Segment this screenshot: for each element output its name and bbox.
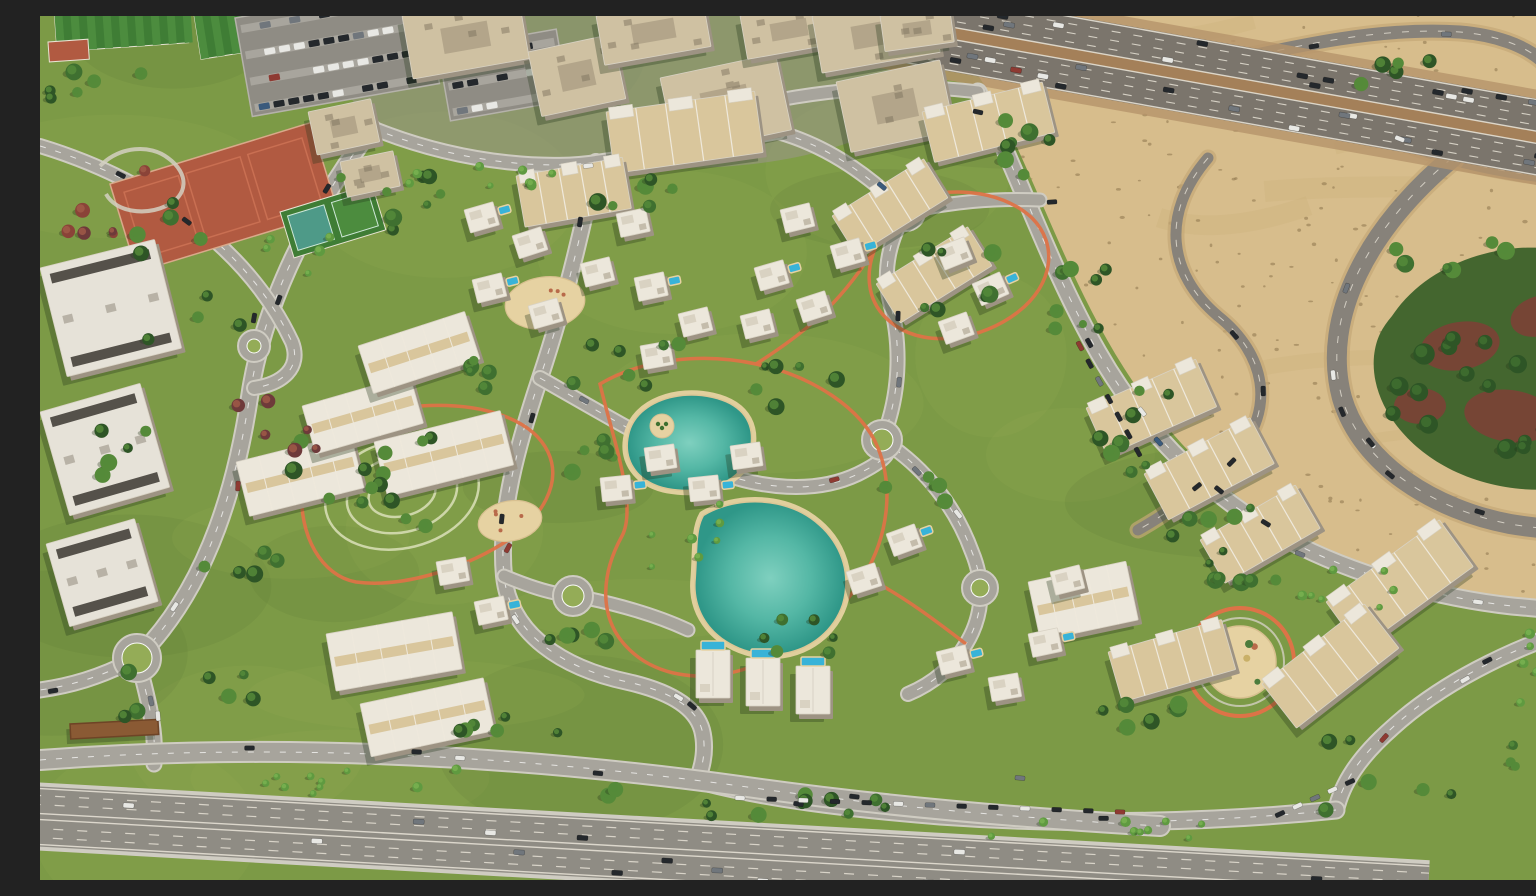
scene-canvas (40, 16, 1536, 880)
pool-villa (740, 649, 783, 714)
pool-villa (690, 641, 733, 706)
red-court (48, 39, 89, 62)
roundabout (238, 330, 270, 362)
pool-villa (790, 657, 833, 722)
roundabout (553, 576, 593, 616)
roundabout (962, 570, 998, 606)
aerial-masterplan-render (40, 16, 1536, 880)
